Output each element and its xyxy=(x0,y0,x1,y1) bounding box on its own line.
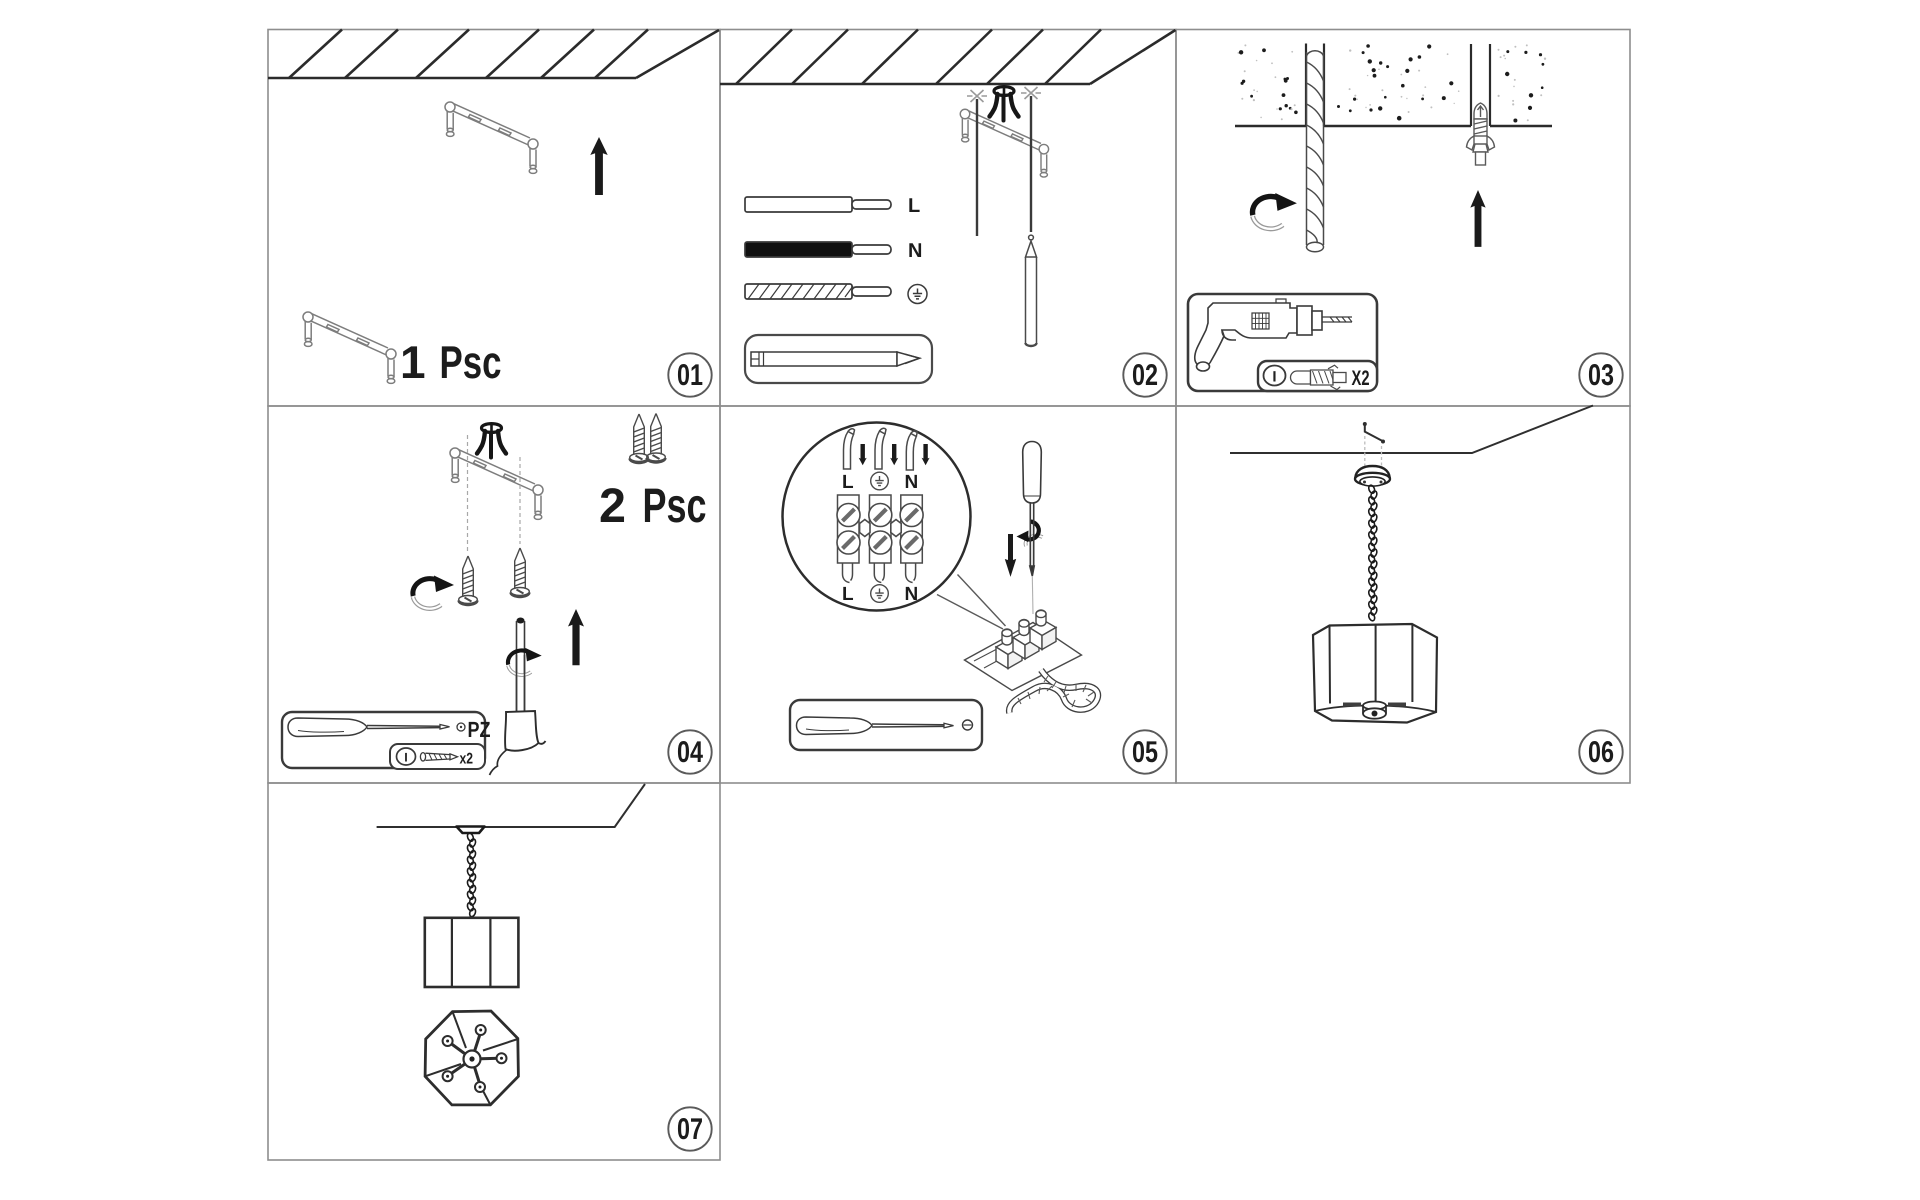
svg-text:L: L xyxy=(842,472,854,493)
svg-text:01: 01 xyxy=(677,359,703,392)
svg-text:05: 05 xyxy=(1132,736,1158,769)
svg-text:N: N xyxy=(905,472,919,493)
svg-text:PZ: PZ xyxy=(468,717,491,742)
svg-text:N: N xyxy=(905,584,919,605)
svg-text:02: 02 xyxy=(1132,359,1158,392)
svg-text:Psc: Psc xyxy=(440,336,502,388)
svg-text:I: I xyxy=(1272,369,1276,386)
svg-text:1: 1 xyxy=(400,336,426,388)
svg-text:I: I xyxy=(404,751,407,765)
svg-text:L: L xyxy=(842,584,854,605)
svg-text:03: 03 xyxy=(1588,359,1614,392)
svg-text:06: 06 xyxy=(1588,736,1614,769)
svg-text:X2: X2 xyxy=(1352,367,1370,390)
svg-text:N: N xyxy=(908,240,922,262)
svg-text:Psc: Psc xyxy=(643,479,707,533)
svg-text:04: 04 xyxy=(677,736,703,769)
svg-text:x2: x2 xyxy=(460,751,474,768)
svg-text:L: L xyxy=(908,195,920,217)
svg-text:07: 07 xyxy=(677,1113,703,1146)
svg-text:2: 2 xyxy=(599,479,626,533)
